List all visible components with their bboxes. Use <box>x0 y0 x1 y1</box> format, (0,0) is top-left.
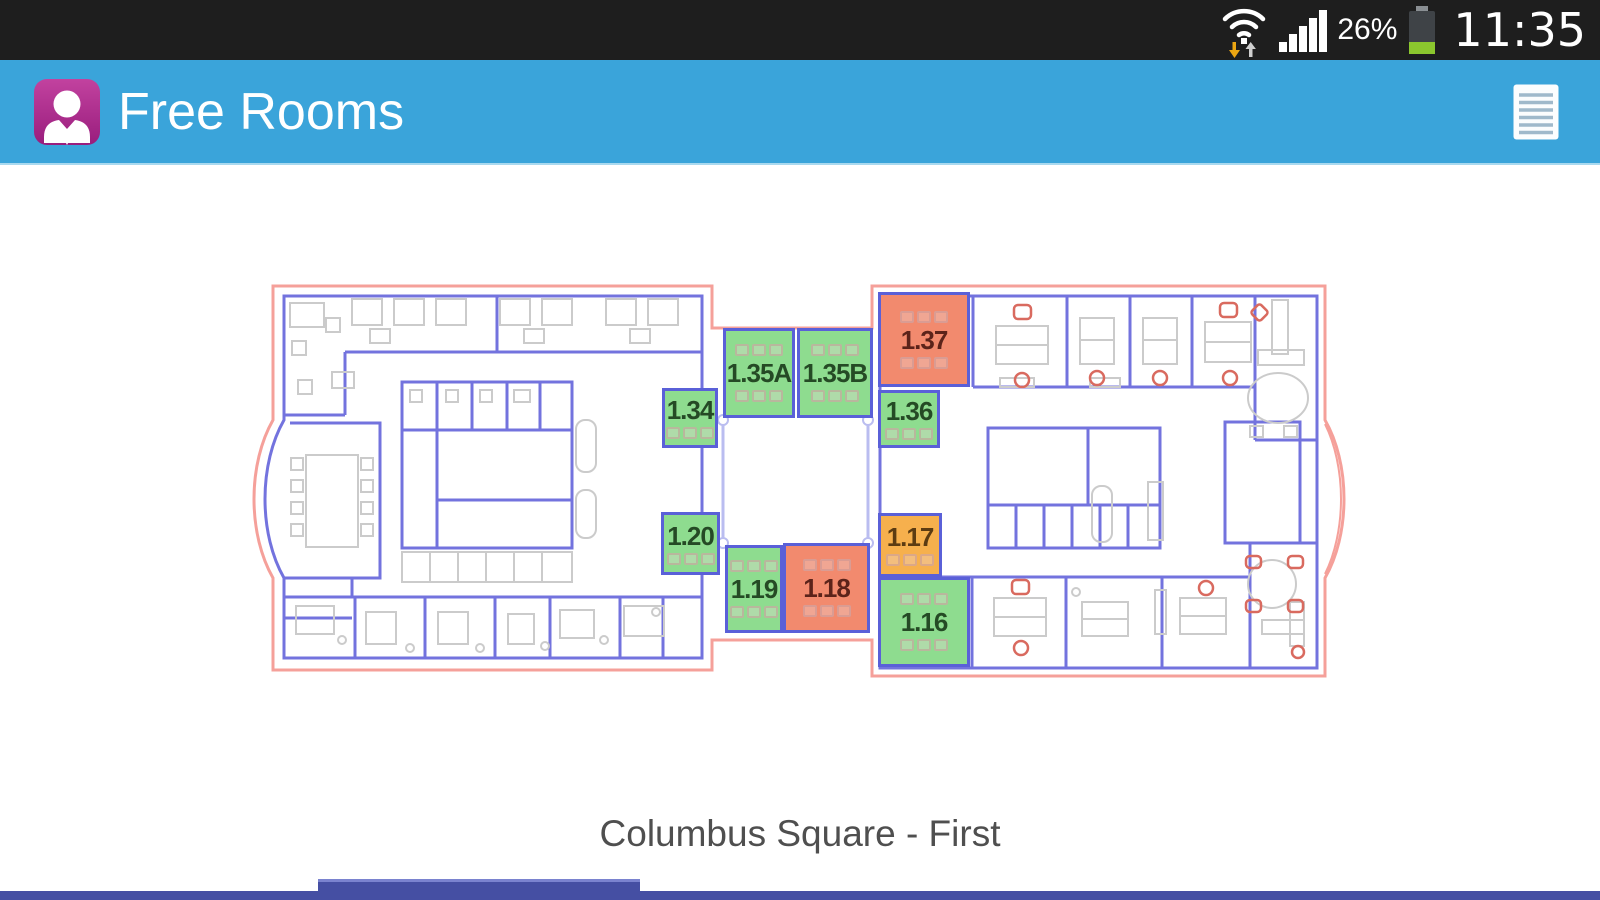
room-1.35A[interactable]: 1.35A <box>723 328 795 418</box>
room-label: 1.17 <box>887 524 934 550</box>
floor-caption: Columbus Square - First <box>0 813 1600 855</box>
room-1.34[interactable]: 1.34 <box>662 388 718 448</box>
room-label: 1.35B <box>803 360 867 386</box>
room-submarks <box>811 390 859 402</box>
room-label: 1.34 <box>667 397 714 423</box>
room-1.20[interactable]: 1.20 <box>661 512 720 575</box>
content-area: 1.35A1.35B1.371.341.361.201.191.181.171.… <box>0 165 1600 900</box>
room-label: 1.20 <box>667 523 714 549</box>
door-nodes <box>718 415 873 548</box>
room-submarks <box>900 639 948 651</box>
room-submarks <box>666 427 714 439</box>
room-submarks <box>730 560 778 572</box>
room-submarks <box>900 357 948 369</box>
room-submarks <box>886 554 934 566</box>
room-label: 1.18 <box>803 575 850 601</box>
room-submarks <box>735 390 783 402</box>
pager-thumb[interactable] <box>318 879 640 900</box>
room-submarks <box>803 559 851 571</box>
room-submarks <box>730 606 778 618</box>
room-1.36[interactable]: 1.36 <box>878 390 940 448</box>
room-label: 1.36 <box>886 398 933 424</box>
corridor-walls <box>723 420 868 543</box>
room-1.18[interactable]: 1.18 <box>783 543 870 633</box>
room-1.16[interactable]: 1.16 <box>878 577 970 667</box>
room-1.17[interactable]: 1.17 <box>878 513 942 577</box>
chairs <box>1012 303 1304 658</box>
room-label: 1.37 <box>901 327 948 353</box>
room-1.37[interactable]: 1.37 <box>878 292 970 387</box>
floorplan-drawing <box>0 0 1600 900</box>
room-submarks <box>900 311 948 323</box>
room-label: 1.35A <box>727 360 791 386</box>
room-label: 1.19 <box>731 576 778 602</box>
screen: 26% 11:35 Free Rooms <box>0 0 1600 900</box>
room-submarks <box>803 605 851 617</box>
room-submarks <box>811 344 859 356</box>
room-submarks <box>885 428 933 440</box>
room-submarks <box>735 344 783 356</box>
room-1.19[interactable]: 1.19 <box>725 545 783 633</box>
room-1.35B[interactable]: 1.35B <box>797 328 873 418</box>
room-label: 1.16 <box>901 609 948 635</box>
room-submarks <box>900 593 948 605</box>
room-submarks <box>667 553 715 565</box>
pager-track <box>0 891 1600 900</box>
